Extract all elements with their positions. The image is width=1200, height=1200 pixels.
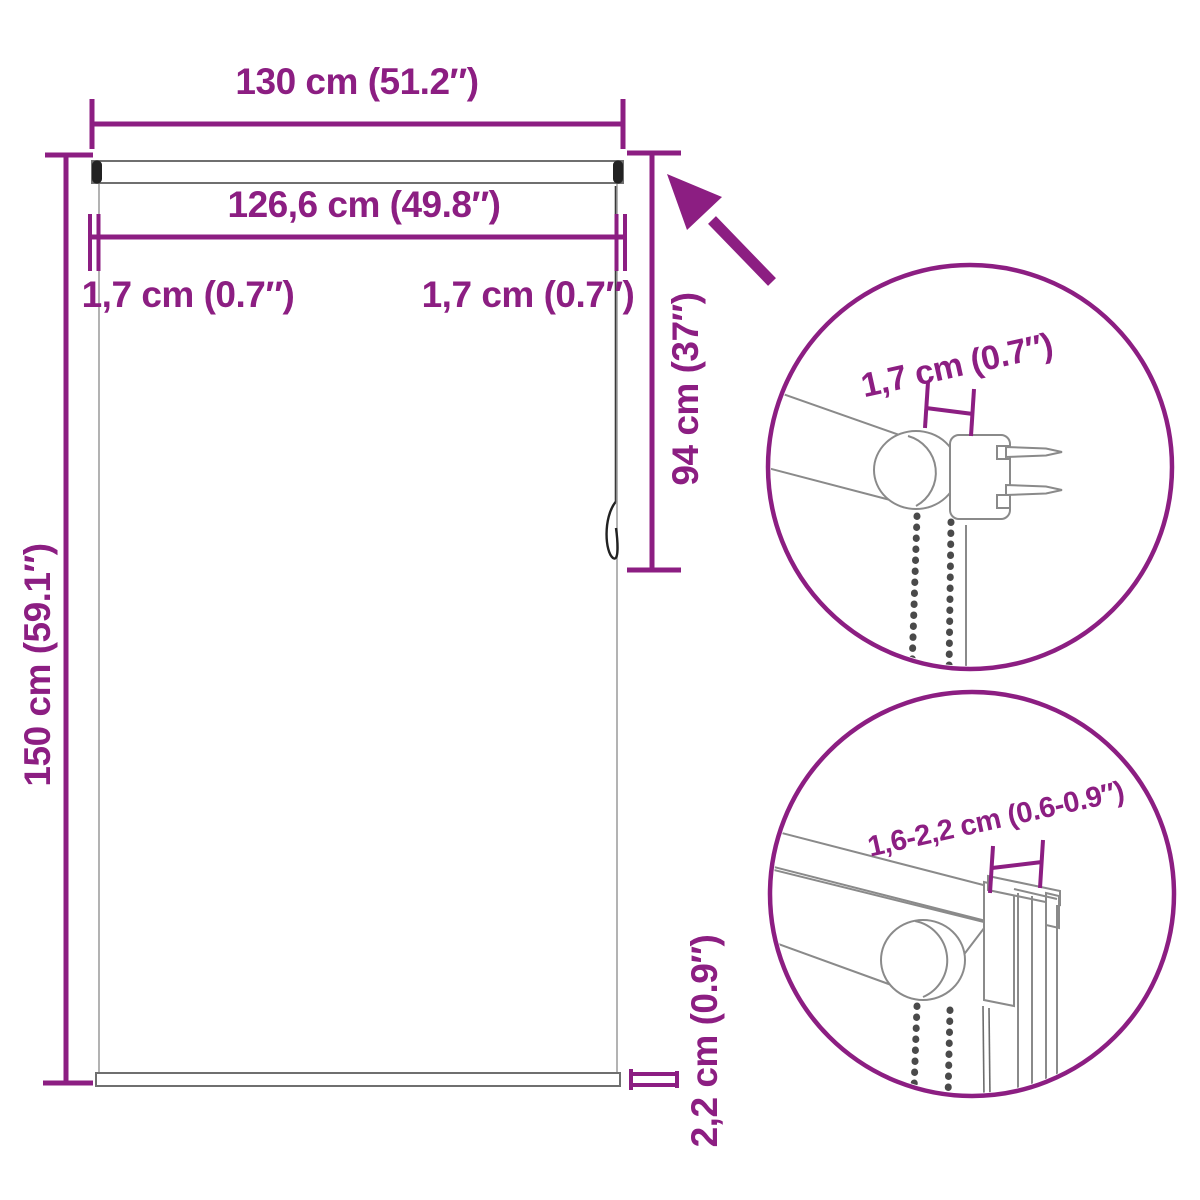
detail-arrow-icon	[667, 174, 772, 282]
tube-cap-detail	[881, 920, 965, 1000]
label-width-fabric: 126,6 cm (49.8″)	[227, 184, 500, 226]
detail-top-art	[760, 386, 1062, 672]
screw-top	[1006, 447, 1062, 457]
label-width-total: 130 cm (51.2″)	[235, 61, 478, 103]
detail-bottom-art	[770, 830, 1060, 1098]
dimension-width-total	[92, 99, 623, 149]
label-offset-right: 1,7 cm (0.7″)	[422, 274, 635, 316]
dimension-bottom-bar	[631, 1069, 677, 1090]
clamp-bracket-plate	[984, 882, 1014, 1006]
roller-end-cap-right	[613, 161, 623, 184]
label-offset-left: 1,7 cm (0.7″)	[82, 274, 295, 316]
tube-cap-detail	[874, 431, 958, 509]
label-bottom-bar: 2,2 cm (0.9″)	[684, 935, 726, 1148]
mount-bracket	[950, 435, 1010, 519]
blind-fabric	[99, 183, 617, 1073]
detail-circle-bottom	[770, 692, 1174, 1098]
bottom-bar	[96, 1073, 620, 1086]
detail-circle-top	[760, 265, 1172, 672]
diagram-artwork	[0, 0, 1200, 1200]
dimension-diagram-canvas: 130 cm (51.2″) 126,6 cm (49.8″) 1,7 cm (…	[0, 0, 1200, 1200]
roller-end-cap-left	[92, 161, 102, 184]
label-height-total: 150 cm (59.1″)	[17, 543, 59, 786]
roller-tube	[92, 161, 623, 183]
screw-bottom	[1006, 485, 1062, 495]
label-chain-length: 94 cm (37″)	[665, 292, 707, 485]
